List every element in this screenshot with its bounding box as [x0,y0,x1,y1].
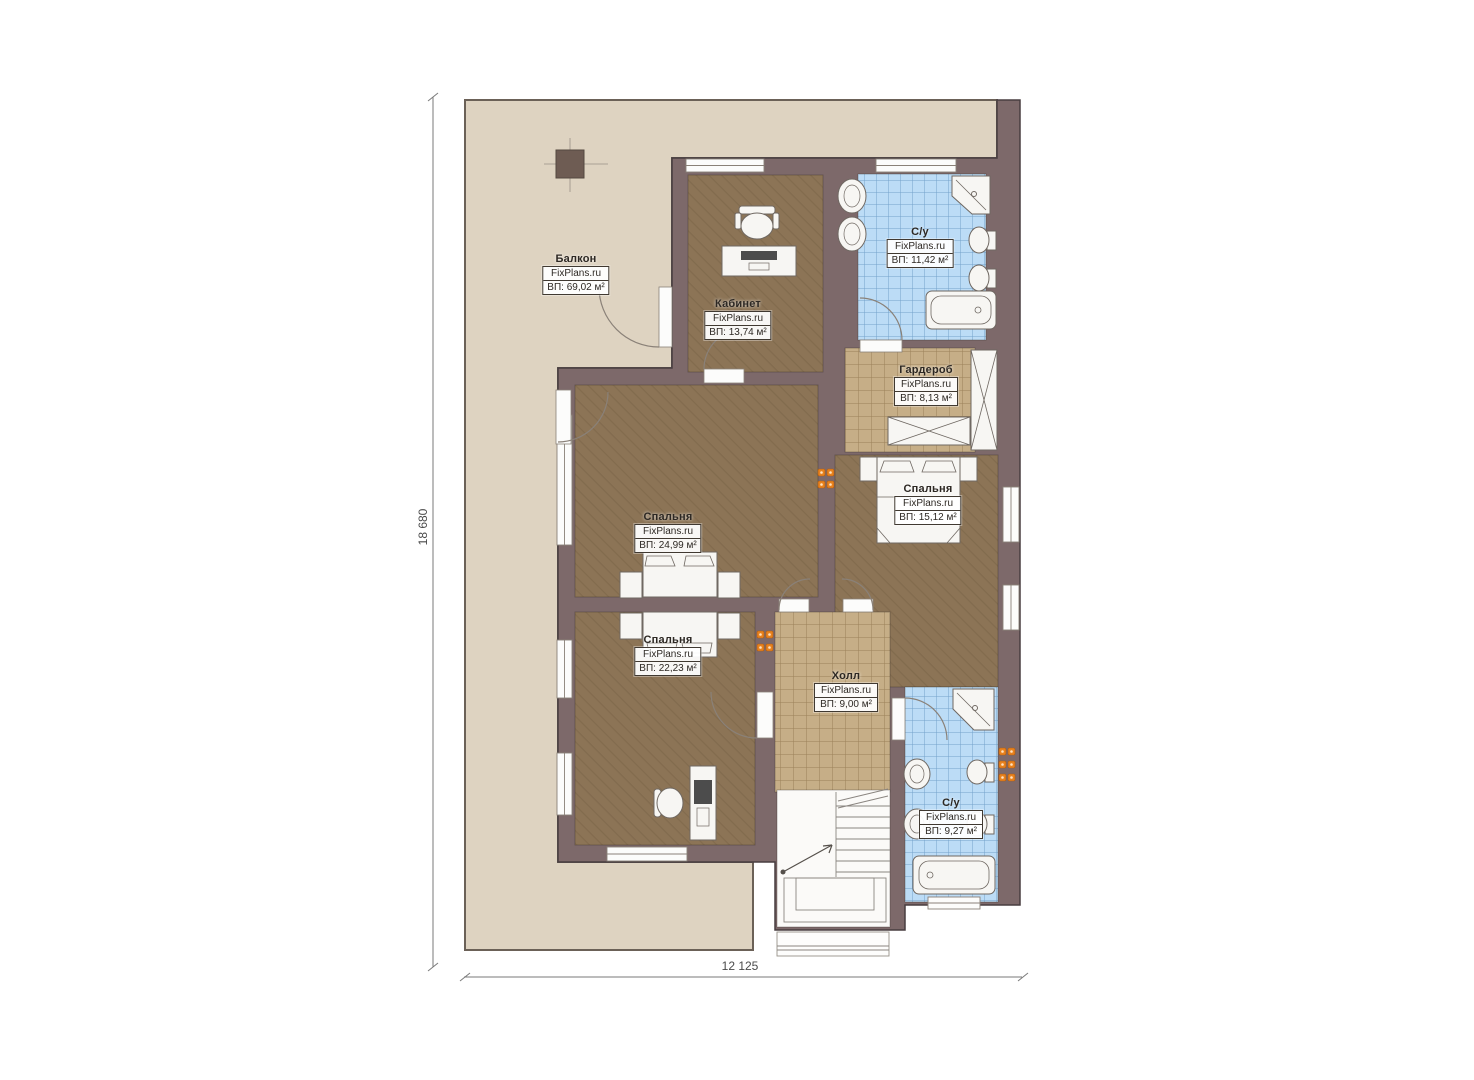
sink [838,179,866,213]
room-info-box: FixPlans.ru ВП: 9,27 м² [919,810,983,839]
room-name: Балкон [542,253,609,265]
sink [838,217,866,251]
window [557,753,572,815]
room-area: ВП: 24,99 м² [635,539,700,552]
room-brand: FixPlans.ru [815,684,877,698]
room-info-box: FixPlans.ru ВП: 15,12 м² [894,496,961,525]
toilet [969,227,996,253]
room-name: Гардероб [894,364,958,376]
window [928,897,980,909]
bathtub [913,856,995,894]
sink [904,759,930,789]
room-label-bedroom-right: Спальня FixPlans.ru ВП: 15,12 м² [894,483,961,525]
toilet [967,760,994,784]
room-info-box: FixPlans.ru ВП: 9,00 м² [814,683,878,712]
wardrobe-unit [971,350,997,450]
room-label-wardrobe: Гардероб FixPlans.ru ВП: 8,13 м² [894,364,958,406]
room-brand: FixPlans.ru [635,648,700,662]
room-area: ВП: 22,23 м² [635,662,700,675]
room-name: Спальня [894,483,961,495]
dimension-width-label: 12 125 [722,959,759,973]
stairwell-floor [777,790,890,927]
room-info-box: FixPlans.ru ВП: 13,74 м² [704,311,771,340]
desk-chair [654,788,683,818]
bathtub [926,291,996,329]
room-name: Спальня [634,511,701,523]
window [1003,585,1019,630]
window [607,847,687,861]
room-brand: FixPlans.ru [888,240,953,254]
room-brand: FixPlans.ru [895,378,957,392]
room-name: С/у [919,797,983,809]
bidet [969,265,996,291]
window [1003,487,1019,542]
wardrobe-unit [888,417,970,445]
room-label-hall: Холл FixPlans.ru ВП: 9,00 м² [814,670,878,712]
room-area: ВП: 13,74 м² [705,326,770,339]
room-info-box: FixPlans.ru ВП: 69,02 м² [542,266,609,295]
room-label-bathroom-top: С/у FixPlans.ru ВП: 11,42 м² [887,226,954,268]
room-name: Холл [814,670,878,682]
room-area: ВП: 15,12 м² [895,511,960,524]
window [686,159,764,172]
window [876,159,956,172]
room-info-box: FixPlans.ru ВП: 24,99 м² [634,524,701,553]
room-area: ВП: 9,27 м² [920,825,982,838]
room-label-bedroom-bottom: Спальня FixPlans.ru ВП: 22,23 м² [634,634,701,676]
room-info-box: FixPlans.ru ВП: 8,13 м² [894,377,958,406]
room-label-bathroom-bottom: С/у FixPlans.ru ВП: 9,27 м² [919,797,983,839]
room-info-box: FixPlans.ru ВП: 11,42 м² [887,239,954,268]
room-area: ВП: 8,13 м² [895,392,957,405]
room-label-balcony: Балкон FixPlans.ru ВП: 69,02 м² [542,253,609,295]
room-info-box: FixPlans.ru ВП: 22,23 м² [634,647,701,676]
room-name: Кабинет [704,298,771,310]
floor-plan-canvas: 18 680 12 125 [0,0,1474,1080]
room-area: ВП: 9,00 м² [815,698,877,711]
room-brand: FixPlans.ru [543,267,608,281]
room-area: ВП: 11,42 м² [888,254,953,267]
room-label-office: Кабинет FixPlans.ru ВП: 13,74 м² [704,298,771,340]
window [557,640,572,698]
office-desk [722,246,796,276]
room-area: ВП: 69,02 м² [543,281,608,294]
room-label-bedroom-top: Спальня FixPlans.ru ВП: 24,99 м² [634,511,701,553]
floor-plan-drawing: 18 680 12 125 [0,0,1474,1080]
room-brand: FixPlans.ru [895,497,960,511]
stair-bay-exterior [777,932,889,956]
room-brand: FixPlans.ru [635,525,700,539]
desk [690,766,716,840]
room-name: С/у [887,226,954,238]
room-brand: FixPlans.ru [920,811,982,825]
room-brand: FixPlans.ru [705,312,770,326]
room-name: Спальня [634,634,701,646]
dimension-height-label: 18 680 [416,508,430,545]
